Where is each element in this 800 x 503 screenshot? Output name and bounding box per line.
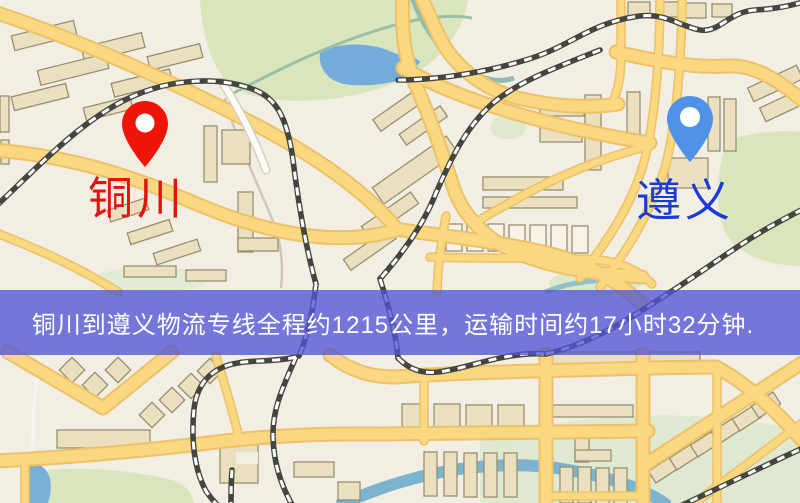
destination-pin-icon[interactable] bbox=[667, 96, 713, 162]
route-info-text: 铜川到遵义物流专线全程约1215公里，运输时间约17小时32分钟. bbox=[32, 305, 768, 340]
route-info-banner: 铜川到遵义物流专线全程约1215公里，运输时间约17小时32分钟. bbox=[0, 290, 800, 355]
destination-label: 遵义 bbox=[636, 178, 734, 223]
map-graphic bbox=[0, 0, 800, 503]
origin-label: 铜川 bbox=[88, 176, 186, 221]
origin-pin-icon[interactable] bbox=[122, 101, 168, 167]
map-screenshot: 铜川 遵义 铜川到遵义物流专线全程约1215公里，运输时间约17小时32分钟. bbox=[0, 0, 800, 503]
